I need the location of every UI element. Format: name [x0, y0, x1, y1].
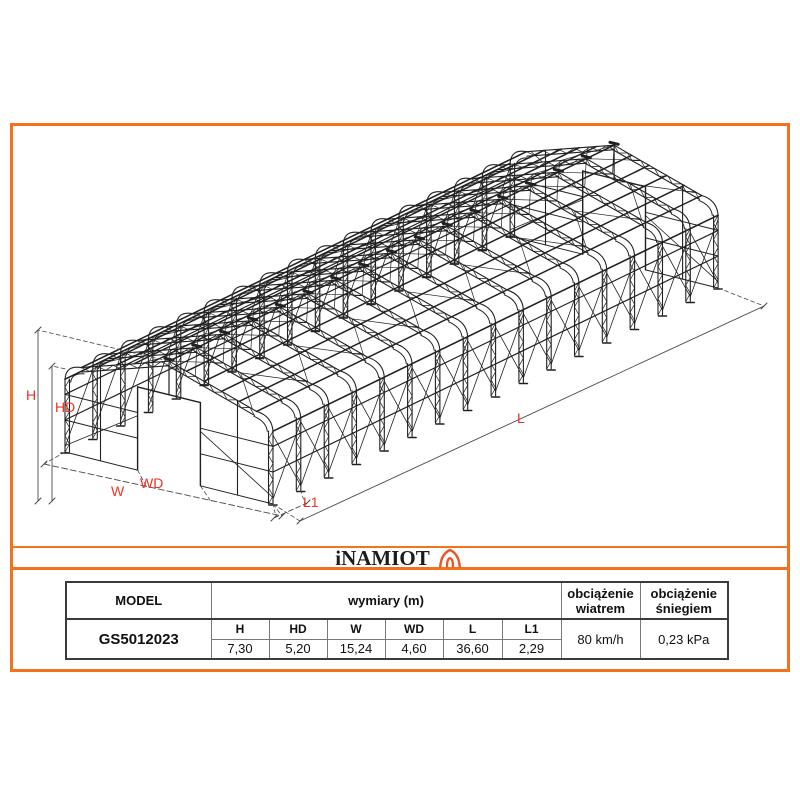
dimension-label-h: H [26, 388, 36, 402]
dimension-label-w: W [111, 484, 124, 498]
dim-val-h: 7,30 [211, 639, 269, 659]
logo-band: iNAMIOT [10, 546, 790, 570]
dimension-label-hd: HD [55, 400, 75, 414]
dim-col-w: W [327, 619, 385, 639]
dim-val-wd: 4,60 [385, 639, 443, 659]
wind-value: 80 km/h [561, 619, 640, 659]
dim-col-wd: WD [385, 619, 443, 639]
dim-val-w: 15,24 [327, 639, 385, 659]
model-value: GS5012023 [66, 619, 211, 659]
dim-col-l1: L1 [502, 619, 561, 639]
dim-val-l: 36,60 [443, 639, 502, 659]
wind-header: obciążenie wiatrem [561, 582, 640, 619]
spec-table: MODEL wymiary (m) obciążenie wiatrem obc… [65, 581, 729, 660]
dimension-label-l: L [517, 411, 525, 425]
dim-col-l: L [443, 619, 502, 639]
dim-val-hd: 5,20 [269, 639, 327, 659]
dim-col-hd: HD [269, 619, 327, 639]
snow-header: obciążenie śniegiem [640, 582, 728, 619]
model-header: MODEL [66, 582, 211, 619]
dim-val-l1: 2,29 [502, 639, 561, 659]
snow-value: 0,23 kPa [640, 619, 728, 659]
dimension-label-l1: L1 [303, 495, 319, 509]
tent-icon [435, 547, 465, 568]
dimension-label-wd: WD [140, 476, 163, 490]
logo-text: iNAMIOT [335, 549, 430, 567]
dim-col-h: H [211, 619, 269, 639]
dims-header: wymiary (m) [211, 582, 561, 619]
datasheet-page: H HD W WD L1 L iNAMIOT MODEL wymiary (m)… [0, 0, 800, 800]
